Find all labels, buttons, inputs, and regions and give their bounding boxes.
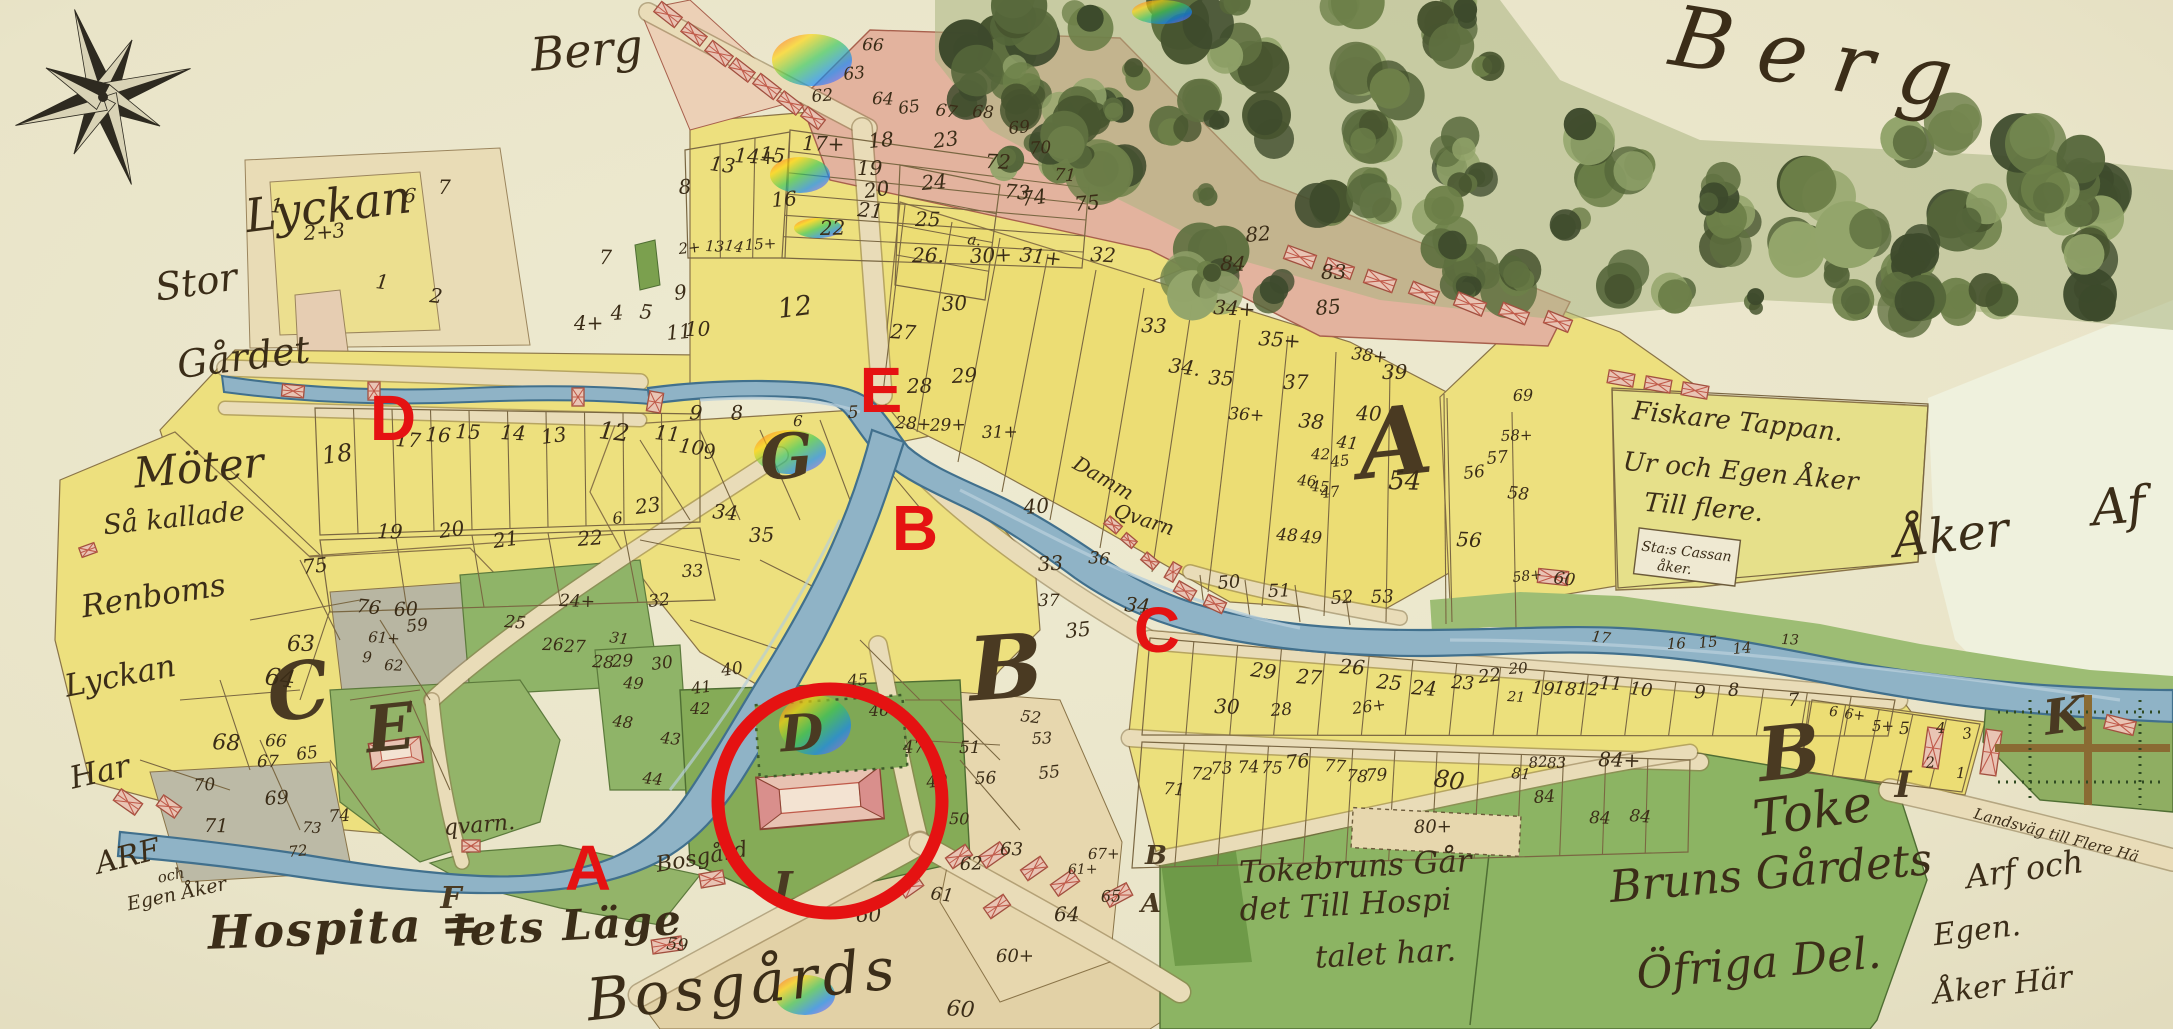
parcel-number: 51 xyxy=(1268,580,1292,602)
parcel-number: 18 xyxy=(1552,677,1577,701)
parcel-number: 24+ xyxy=(558,591,596,612)
parcel-number: 49 xyxy=(1299,527,1323,549)
district-letter-B: B xyxy=(1144,841,1167,871)
parcel-number: 84+ xyxy=(1598,747,1641,772)
parcel-number: 75 xyxy=(1073,190,1101,216)
parcel-number: 30+ xyxy=(969,242,1012,268)
parcel-number: 37 xyxy=(1283,370,1309,394)
parcel-number: 68 xyxy=(972,102,995,123)
annotation-letter-D: D xyxy=(370,382,416,454)
parcel-number: 18 xyxy=(867,127,894,153)
parcel-number: 6 xyxy=(1829,704,1839,720)
parcel-number: 84 xyxy=(1533,787,1556,808)
parcel-number: 35 xyxy=(749,522,775,547)
parcel-number: 36 xyxy=(1088,548,1111,570)
parcel-number: 57 xyxy=(1486,447,1509,469)
parcel-number: 61+ xyxy=(1068,862,1098,878)
parcel-number: 72 xyxy=(288,841,309,861)
parcel-number: 66 xyxy=(265,731,288,752)
parcel-number: 11 xyxy=(1599,673,1623,695)
parcel-number: 84 xyxy=(1629,806,1652,828)
annotation-letter-C: C xyxy=(1134,594,1180,666)
historical-map-scan: BergBergLyckanStorGårdetMöterSå kalladeR… xyxy=(0,0,2173,1029)
parcel-number: 34. xyxy=(1167,353,1202,381)
parcel-number: 26 xyxy=(541,635,564,655)
parcel-number: 73 xyxy=(302,818,322,837)
parcel-number: 12 xyxy=(776,290,814,325)
parcel-number: 19 xyxy=(377,519,403,544)
parcel-number: 11 xyxy=(653,420,681,447)
parcel-number: 84 xyxy=(1589,808,1611,829)
building xyxy=(572,388,584,406)
parcel-number: 15 xyxy=(758,141,786,168)
parcel-number: 29 xyxy=(1248,657,1278,684)
parcel-number: 8 xyxy=(678,174,692,199)
parcel-number: 75 xyxy=(301,552,329,579)
parcel-number: 33 xyxy=(1037,551,1064,576)
parcel-number: 65 xyxy=(897,96,921,118)
parcel-number: 13 xyxy=(708,151,736,178)
parcel-number: 31+ xyxy=(1018,242,1063,271)
parcel-number: 27 xyxy=(563,637,586,657)
parcel-number: 25 xyxy=(914,207,941,231)
parcel-number: 64 xyxy=(1054,902,1080,926)
parcel-number: 82 xyxy=(1244,221,1271,247)
parcel-number: 39 xyxy=(1382,360,1408,384)
parcel-number: 12 xyxy=(597,416,631,447)
parcel-number: 48 xyxy=(611,711,634,732)
parcel-number: 44 xyxy=(641,768,664,789)
parcel-number: 23 xyxy=(1450,672,1475,695)
parcel-number: 29 xyxy=(610,651,634,672)
parcel-number: 56 xyxy=(1456,527,1483,552)
parcel-number: 1 xyxy=(270,193,284,218)
parcel-number: 73 xyxy=(1211,758,1233,779)
parcel-number: 17+ xyxy=(802,131,845,156)
parcel-number: 62 xyxy=(811,85,834,107)
parcel-number: 23 xyxy=(931,126,960,153)
parcel-number: 10 xyxy=(1628,678,1653,702)
district-letter-D: D xyxy=(776,702,825,764)
parcel-number: 74 xyxy=(1020,184,1048,211)
parcel-number: 16 xyxy=(1666,634,1686,653)
parcel-number: 74 xyxy=(328,806,351,827)
parcel-number: 2+ xyxy=(677,238,702,258)
parcel-number: 40 xyxy=(1022,493,1050,519)
parcel-number: 59 xyxy=(405,615,429,637)
district-letter-B: B xyxy=(1752,707,1825,799)
parcel-number: 71 xyxy=(1054,165,1077,186)
parcel-number: 24 xyxy=(1410,675,1438,701)
parcel-number: 22 xyxy=(819,216,846,240)
parcel-number: 50 xyxy=(949,809,970,828)
parcel-number: 10 xyxy=(677,433,706,460)
parcel-number: 5 xyxy=(1899,719,1910,739)
parcel-number: 76 xyxy=(355,595,381,619)
parcel-number: 9 xyxy=(362,648,373,667)
parcel-number: 2+ xyxy=(302,219,334,245)
parcel-number: 31+ xyxy=(982,422,1018,443)
parcel-number: 68 xyxy=(212,730,241,756)
parcel-number: 61 xyxy=(929,883,954,907)
parcel-number: 63 xyxy=(842,63,866,85)
parcel-number: 3 xyxy=(331,218,346,243)
parcel-number: 45 xyxy=(1329,451,1351,471)
parcel-number: 7 xyxy=(599,245,613,269)
parcel-number: 72 xyxy=(985,149,1011,174)
district-letter-B: B xyxy=(962,613,1046,722)
parcel-number: 69 xyxy=(1008,117,1032,139)
parcel-number: 31 xyxy=(608,628,629,648)
parcel-number: 21 xyxy=(490,526,519,553)
parcel-number: 15 xyxy=(455,419,482,444)
parcel-number: 85 xyxy=(1314,294,1341,320)
parcel-number: 8 xyxy=(1728,680,1740,701)
parcel-number: 20 xyxy=(1507,659,1529,678)
parcel-number: 30 xyxy=(941,291,968,316)
parcel-number: 6 xyxy=(403,183,417,208)
parcel-number: 35+ xyxy=(1258,326,1302,353)
building xyxy=(282,384,305,398)
parcel-number: 67 xyxy=(934,100,958,123)
map-canvas: BergBergLyckanStorGårdetMöterSå kalladeR… xyxy=(0,0,2173,1029)
parcel-number: 35 xyxy=(1208,365,1235,391)
parcel-number: 60+ xyxy=(996,946,1034,967)
parcel-number: 21 xyxy=(1506,689,1526,706)
parcel-number: 26. xyxy=(911,243,944,267)
parcel-number: 51 xyxy=(959,738,981,758)
parcel-number: 14 xyxy=(723,236,744,256)
parcel-number: 20 xyxy=(436,516,466,543)
parcel-number: 14 xyxy=(1732,638,1753,658)
scan-glitch xyxy=(772,34,852,86)
parcel-number: 70 xyxy=(1029,138,1052,159)
parcel-number: 35 xyxy=(1064,616,1092,643)
parcel-number: 70 xyxy=(193,775,216,796)
parcel-number: 2 xyxy=(427,283,443,308)
parcel-number: 56 xyxy=(975,768,997,789)
parcel-number: 32 xyxy=(647,590,671,612)
parcel-number: 13 xyxy=(705,237,725,256)
parcel-number: 63 xyxy=(1000,839,1023,860)
parcel-number: 18 xyxy=(320,438,354,470)
parcel-number: 29+ xyxy=(929,415,966,436)
parcel-number: 13 xyxy=(1781,632,1799,649)
parcel-number: 5 xyxy=(847,403,859,423)
parcel-number: 74 xyxy=(1237,757,1259,778)
building xyxy=(462,840,480,852)
parcel-number: 60 xyxy=(945,996,975,1023)
place-label-tokebruns-3: talet har. xyxy=(1314,932,1457,975)
parcel-number: 67+ xyxy=(1088,845,1120,863)
annotation-letter-A: A xyxy=(565,832,611,904)
parcel-number: 53 xyxy=(1031,728,1052,748)
parcel-number: 58 xyxy=(1507,483,1530,505)
parcel-number: 83 xyxy=(1547,754,1566,772)
parcel-number: 42 xyxy=(1310,445,1331,464)
parcel-number: 42 xyxy=(689,699,710,718)
parcel-number: 23 xyxy=(633,492,662,519)
district-letter-F: F xyxy=(439,881,464,916)
parcel-number: 24 xyxy=(920,169,948,195)
parcel-number: 40 xyxy=(719,658,744,681)
parcel-number: 7 xyxy=(438,175,451,199)
parcel-number: 64 xyxy=(872,89,894,110)
parcel-number: 22 xyxy=(1476,664,1502,688)
parcel-number: 47 xyxy=(1319,482,1341,502)
parcel-number: 56 xyxy=(1462,462,1486,484)
parcel-number: 28 xyxy=(1269,699,1293,721)
parcel-number: 7 xyxy=(1787,690,1800,711)
parcel-number: 33 xyxy=(1141,313,1167,338)
parcel-number: 5+ xyxy=(1872,717,1894,735)
parcel-number: 65 xyxy=(295,743,319,765)
parcel-number: 15+ xyxy=(744,234,777,254)
parcel-number: 4+ xyxy=(573,311,604,335)
parcel-number: 13 xyxy=(540,422,568,449)
parcel-number: 16 xyxy=(770,186,798,212)
parcel-number: 17 xyxy=(1590,627,1612,647)
parcel-number: 80 xyxy=(1432,764,1466,796)
parcel-number: 8 xyxy=(730,400,744,425)
district-letter-E: E xyxy=(360,689,420,769)
parcel-number: 5 xyxy=(638,299,653,324)
parcel-number: 55 xyxy=(1037,762,1061,784)
parcel-number: 38 xyxy=(1298,408,1326,434)
parcel-number: 2 xyxy=(1924,753,1936,772)
parcel-number: 80+ xyxy=(1414,816,1453,838)
parcel-number: 10 xyxy=(685,317,711,341)
parcel-number: 9 xyxy=(702,439,717,464)
parcel-number: 64 xyxy=(263,662,297,694)
parcel-number: 12 xyxy=(1576,678,1600,701)
parcel-number: 61+ xyxy=(368,628,401,648)
parcel-number: 49 xyxy=(622,673,644,693)
parcel-number: 9 xyxy=(689,400,704,425)
parcel-number: 76 xyxy=(1284,750,1310,774)
parcel-number: 84 xyxy=(1220,251,1246,276)
parcel-number: 25 xyxy=(503,612,527,634)
parcel-number: 14 xyxy=(500,420,527,445)
parcel-number: 58+ xyxy=(1512,567,1543,586)
parcel-number: 30 xyxy=(650,652,674,675)
parcel-number: 27 xyxy=(889,319,917,345)
parcel-number: 6+ xyxy=(1844,706,1866,724)
parcel-number: 58+ xyxy=(1501,426,1533,445)
parcel-number: 65 xyxy=(1101,886,1122,906)
parcel-number: 69 xyxy=(264,787,290,810)
scan-glitch xyxy=(1132,0,1192,24)
parcel-number: 59 xyxy=(665,934,689,956)
district-letter-G: G xyxy=(758,418,816,495)
parcel-number: 6 xyxy=(793,412,803,430)
parcel-number: 50 xyxy=(1217,571,1242,594)
parcel-number: 83 xyxy=(1321,260,1347,284)
parcel-number: 33 xyxy=(681,561,703,582)
parcel-number: 4 xyxy=(609,300,624,325)
parcel-number: 40 xyxy=(1355,401,1382,426)
parcel-number: 36+ xyxy=(1228,404,1265,426)
parcel-number: 77 xyxy=(1324,756,1347,777)
parcel-number: 1 xyxy=(1956,764,1966,782)
parcel-number: 6 xyxy=(612,508,624,528)
parcel-number: 43 xyxy=(659,728,682,749)
parcel-number: 62 xyxy=(384,656,404,675)
parcel-number: 71 xyxy=(1163,779,1186,801)
parcel-number: 34 xyxy=(712,499,740,525)
parcel-number: 26 xyxy=(1338,654,1366,680)
parcel-number: 79 xyxy=(1365,765,1388,786)
parcel-number: 27 xyxy=(1295,664,1324,690)
building xyxy=(646,391,663,413)
parcel-number: 48 xyxy=(1275,525,1299,546)
parcel-number: 37 xyxy=(1038,591,1060,611)
parcel-number: 62 xyxy=(959,853,983,875)
annotation-letter-E: E xyxy=(860,354,903,426)
district-letter-C: C xyxy=(261,642,335,741)
parcel-number: 32 xyxy=(1090,242,1117,267)
parcel-number: 53 xyxy=(1370,586,1394,608)
parcel-number: 52 xyxy=(1019,706,1042,727)
annotation-letter-B: B xyxy=(892,492,938,564)
parcel-number: 25 xyxy=(1374,669,1403,696)
parcel-number: 22 xyxy=(576,525,604,551)
parcel-number: 82 xyxy=(1528,752,1549,772)
parcel-number: 66 xyxy=(862,35,885,56)
parcel-number: 4 xyxy=(1935,719,1946,737)
parcel-number: 54 xyxy=(1388,466,1422,497)
parcel-number: 67 xyxy=(257,752,279,772)
district-letter-A: A xyxy=(1138,889,1161,919)
parcel-number: 28 xyxy=(906,374,933,399)
parcel-number: 21 xyxy=(855,197,884,224)
parcel-number: 69 xyxy=(1513,385,1534,405)
parcel-number: 30 xyxy=(1214,694,1241,719)
parcel-number: 63 xyxy=(287,632,315,657)
parcel-number: 60 xyxy=(1552,568,1576,591)
parcel-number: 52 xyxy=(1330,586,1354,609)
parcel-number: 41 xyxy=(689,677,713,699)
parcel-number: 71 xyxy=(204,815,228,837)
parcel-number: 16 xyxy=(425,422,452,447)
parcel-number: 29 xyxy=(950,363,978,388)
place-label-berg-west: Berg xyxy=(527,18,645,82)
parcel-number: 34+ xyxy=(1213,295,1256,321)
parcel-number: 15 xyxy=(1698,632,1719,652)
parcel-number: 75 xyxy=(1261,758,1283,779)
parcel-number: 9 xyxy=(1694,682,1706,703)
district-letter-I: I xyxy=(1894,764,1913,806)
